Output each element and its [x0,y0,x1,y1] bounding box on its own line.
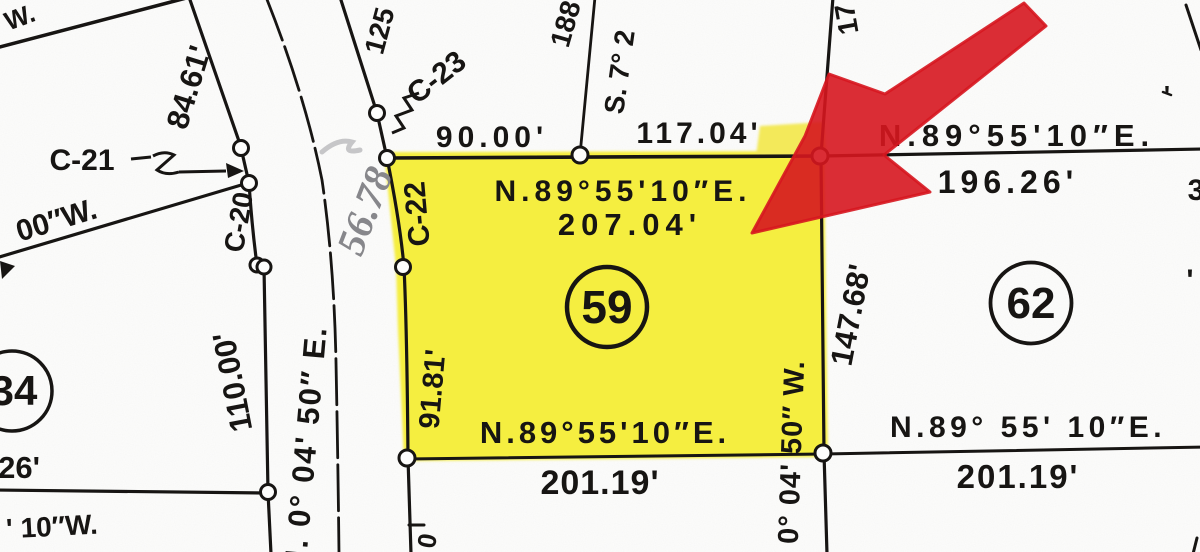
svg-text:90.00': 90.00' [436,121,548,154]
svg-text:N.89° 55' 10″E.: N.89° 55' 10″E. [890,411,1166,444]
svg-text:34: 34 [0,367,38,414]
svg-text:': ' [1164,80,1170,110]
svg-text:C-22: C-22 [398,180,437,248]
svg-text:201.19': 201.19' [957,458,1080,495]
svg-text:62: 62 [1007,279,1056,328]
svg-text:N.89°55'10″E.: N.89°55'10″E. [495,175,752,208]
svg-text:': ' [1186,264,1193,297]
svg-text:N.89°55'10″E.: N.89°55'10″E. [480,415,730,450]
svg-text:59: 59 [581,281,632,333]
svg-text:196.26': 196.26' [938,164,1078,200]
svg-text:26': 26' [0,450,40,485]
svg-text:201.19': 201.19' [540,464,659,502]
svg-text:3: 3 [1188,174,1200,207]
svg-text:0° 04' 50″ W.: 0° 04' 50″ W. [773,360,811,545]
svg-text:' 10″W.: ' 10″W. [5,509,98,545]
svg-text:17: 17 [829,1,865,37]
svg-text:207.04': 207.04' [558,207,702,242]
svg-text:C-21: C-21 [49,144,114,177]
svg-text:117.04': 117.04' [636,117,761,150]
